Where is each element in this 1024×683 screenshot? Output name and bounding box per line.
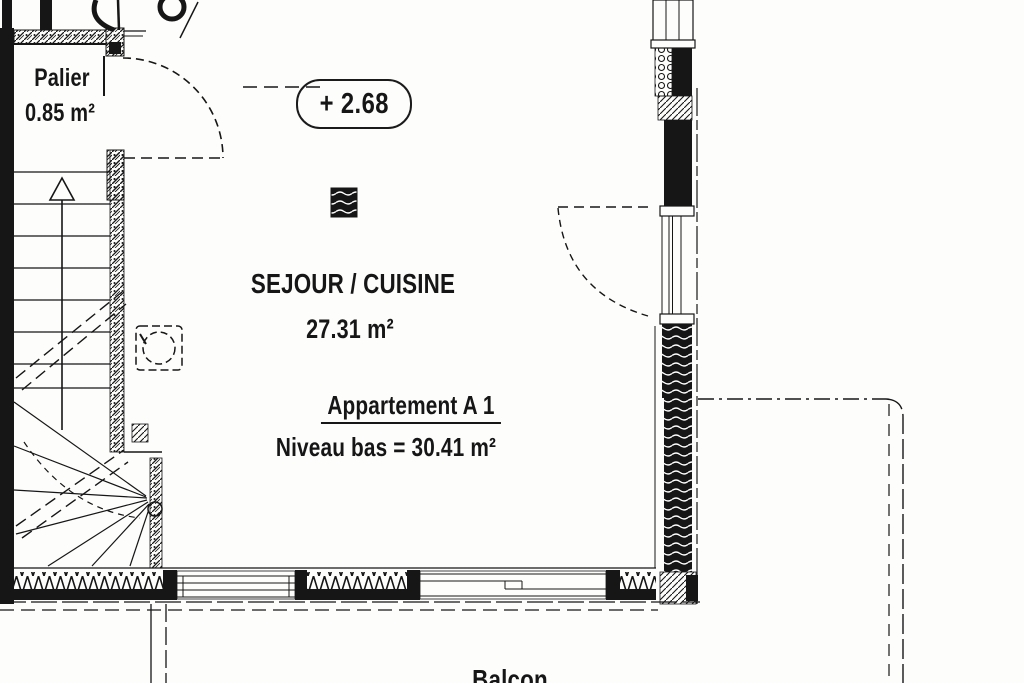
room-label: SEJOUR / CUISINE — [251, 270, 455, 298]
water-heater-symbol — [136, 326, 182, 370]
right-wall — [651, 0, 698, 604]
duct-symbol — [331, 188, 357, 217]
bottom-wall — [0, 568, 700, 602]
bottom-window-2 — [420, 571, 606, 599]
left-wall — [0, 0, 14, 604]
plan-linework — [0, 0, 1024, 683]
staircase — [14, 172, 162, 566]
stair-direction-arrow — [50, 178, 74, 430]
floor-plan: Palier 0.85 m² + 2.68 SEJOUR / CUISINE 2… — [0, 0, 1024, 683]
balcony-label: Balcon — [472, 666, 548, 683]
stair-winder-treads — [14, 402, 150, 566]
apartment-area-label: Niveau bas = 30.41 m² — [276, 434, 496, 460]
landing-label: Palier — [34, 66, 89, 91]
facade-door-swing — [558, 207, 654, 316]
landing-area-label: 0.85 m² — [25, 101, 95, 126]
level-marker-value: + 2.68 — [319, 88, 388, 121]
landing-top-wall — [14, 28, 146, 56]
facade-door-frame — [660, 206, 694, 324]
bottom-window-1 — [177, 571, 295, 599]
apartment-title: Appartement A 1 — [321, 392, 501, 424]
facade-window-top — [651, 0, 695, 48]
level-marker: + 2.68 — [296, 79, 412, 129]
room-area-label: 27.31 m² — [306, 316, 394, 343]
